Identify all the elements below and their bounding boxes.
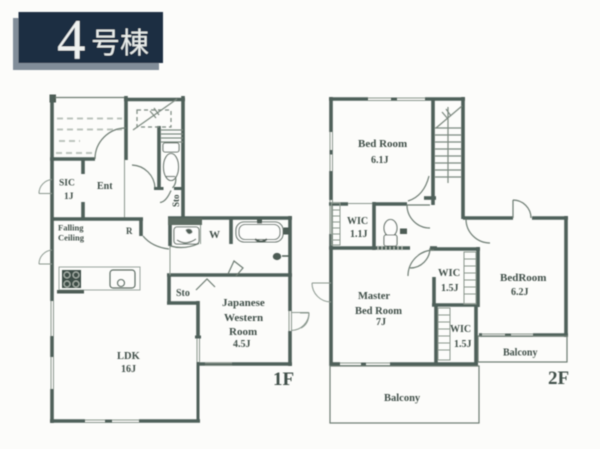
svg-text:1.1J: 1.1J (350, 229, 368, 240)
svg-text:1J: 1J (64, 192, 74, 202)
svg-text:4.5J: 4.5J (233, 339, 251, 350)
svg-text:WIC: WIC (438, 268, 460, 279)
svg-text:BedRoom: BedRoom (500, 272, 546, 284)
svg-text:Room: Room (229, 326, 257, 338)
svg-text:WIC: WIC (347, 216, 368, 227)
svg-text:LDK: LDK (117, 351, 141, 362)
svg-text:Ceiling: Ceiling (58, 233, 85, 243)
svg-text:1.5J: 1.5J (454, 339, 472, 350)
svg-text:号棟: 号棟 (91, 27, 149, 60)
svg-text:Sto: Sto (171, 194, 181, 207)
svg-text:Falling: Falling (58, 223, 84, 233)
svg-text:4: 4 (57, 9, 86, 72)
svg-text:Western: Western (224, 312, 263, 324)
svg-text:6.1J: 6.1J (371, 155, 389, 166)
svg-text:2F: 2F (548, 368, 569, 389)
svg-text:Master: Master (358, 291, 390, 302)
svg-text:6.2J: 6.2J (511, 287, 529, 298)
svg-text:1F: 1F (273, 369, 294, 390)
svg-text:Balcony: Balcony (384, 393, 421, 404)
svg-text:16J: 16J (121, 364, 136, 375)
svg-text:SIC: SIC (59, 179, 75, 189)
svg-text:Bed Room: Bed Room (358, 138, 407, 150)
svg-text:W: W (209, 229, 220, 241)
svg-text:7J: 7J (376, 317, 386, 328)
svg-text:Balcony: Balcony (503, 348, 537, 359)
svg-text:Bed Room: Bed Room (355, 306, 402, 317)
svg-text:1.5J: 1.5J (441, 283, 459, 294)
svg-text:Ent: Ent (97, 181, 113, 192)
svg-text:Sto: Sto (176, 288, 190, 299)
svg-text:Japanese: Japanese (222, 297, 265, 309)
svg-text:R: R (126, 226, 133, 236)
svg-text:WIC: WIC (450, 324, 471, 335)
